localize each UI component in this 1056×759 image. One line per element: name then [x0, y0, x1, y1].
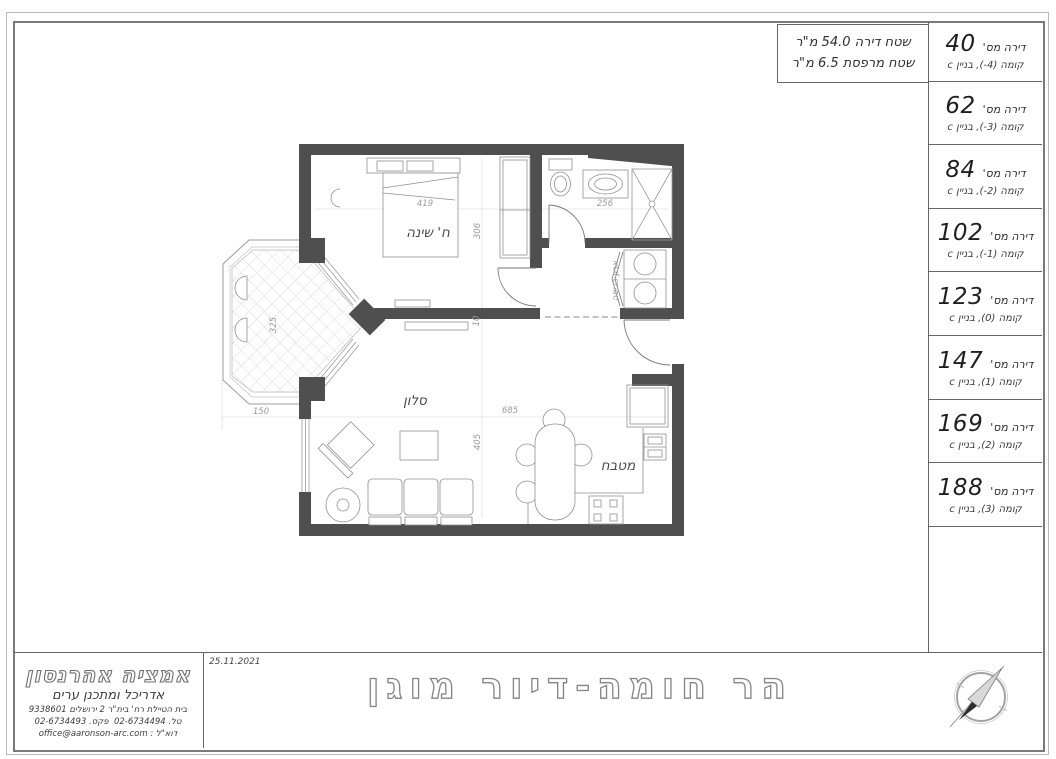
floor-info: קומה (2), בניין c	[949, 440, 1022, 451]
walls	[299, 144, 684, 536]
armchair	[318, 419, 377, 478]
dining-table	[516, 409, 592, 520]
floor-info: קומה (3), בניין c	[949, 504, 1022, 515]
dim-bedroom-width: 419	[417, 199, 433, 209]
apartment-row: דירה מס'62 קומה (-3), בניין c	[929, 82, 1042, 145]
entry-door	[624, 320, 670, 365]
living-shelf	[405, 322, 468, 330]
floor-info: קומה (-4), בניין c	[947, 60, 1023, 71]
wardrobe	[500, 157, 530, 258]
apartment-row: דירה מס'84 קומה (-2), בניין c	[929, 145, 1042, 209]
unit-number: 147	[938, 348, 983, 374]
dim-balcony-width: 150	[253, 407, 269, 417]
dim-balcony-depth: 325	[269, 317, 279, 333]
architect-address: בית הטיילת רח' בית"ר 2 ירושלים 9338601	[29, 705, 187, 715]
coffee-table	[400, 431, 438, 460]
shower-icon	[632, 169, 672, 240]
empty-cell	[929, 527, 1042, 651]
dim-wall: 10	[472, 316, 482, 327]
toilet-icon	[549, 159, 572, 196]
area-summary-box: שטח דירה 54.0 מ"ר שטח מרפסת 6.5 מ"ר	[777, 24, 929, 83]
apartment-row: דירה מס'147 קומה (1), בניין c	[929, 336, 1042, 400]
living-window	[299, 419, 311, 492]
apartment-row: דירה מס'102 קומה (-1), בניין c	[929, 209, 1042, 272]
floor-info: קומה (1), בניין c	[949, 377, 1022, 388]
dim-living-depth: 405	[473, 434, 483, 450]
bedside-lamp	[331, 189, 340, 207]
unit-number: 188	[938, 475, 983, 501]
north-arrow-icon	[948, 663, 1016, 731]
bedroom-label: ח' שינה	[406, 225, 450, 241]
balcony-area-text: שטח מרפסת 6.5 מ"ר	[792, 54, 915, 74]
dim-bath-width: 256	[597, 199, 614, 209]
unit-label: דירה מס'	[983, 41, 1026, 54]
architect-stamp: אמציה אהרנסון אדריכל ומתכנן ערים בית הטי…	[13, 653, 204, 748]
floor-plan: ח' שינה סלון מטבח ארון כביסה 419 306 256…	[215, 133, 695, 555]
apartment-table: דירה מס'40 קומה (-4), בניין c דירה מס'62…	[928, 21, 1042, 652]
sofa	[368, 479, 473, 525]
floor-info: קומה (0), בניין c	[949, 313, 1022, 324]
unit-number: 62	[945, 93, 975, 119]
dim-living-width: 685	[502, 406, 518, 416]
laundry-label: ארון כביסה	[611, 261, 621, 302]
apartment-row: דירה מס'169 קומה (2), בניין c	[929, 400, 1042, 463]
architect-name: אמציה אהרנסון	[25, 663, 191, 687]
unit-number: 84	[945, 157, 975, 183]
kitchen-sink-icon	[644, 434, 666, 460]
unit-number: 40	[945, 31, 975, 57]
architect-email: דוא"ל : office@aaronson-arc.com	[39, 729, 178, 739]
project-title: הר חומה-דיור מוגן	[220, 666, 940, 707]
fridge-icon	[627, 385, 668, 427]
architect-profession: אדריכל ומתכנן ערים	[52, 688, 164, 703]
bathroom-door	[549, 205, 585, 243]
apartment-row: דירה מס'188 קומה (3), בניין c	[929, 463, 1042, 527]
living-label: סלון	[403, 393, 428, 409]
balcony	[223, 240, 366, 404]
floor-info: קומה (-3), בניין c	[947, 122, 1023, 133]
architect-phone: טל. 02-6734494 פקס. 02-6734493	[35, 717, 182, 727]
floor-info: קומה (-2), בניין c	[947, 186, 1023, 197]
stove-icon	[589, 496, 623, 524]
bedroom-door	[498, 268, 536, 306]
dim-bedroom-depth: 306	[473, 222, 483, 239]
floor-info: קומה (-1), בניין c	[947, 249, 1023, 260]
sink-icon	[583, 170, 628, 198]
bedroom-shelf	[395, 300, 430, 307]
apartment-row: דירה מס'40 קומה (-4), בניין c	[929, 21, 1042, 82]
apartment-area-text: שטח דירה 54.0 מ"ר	[795, 33, 910, 53]
bed	[367, 158, 460, 257]
apartment-row: דירה מס'123 קומה (0), בניין c	[929, 272, 1042, 336]
drawing-sheet: שטח דירה 54.0 מ"ר שטח מרפסת 6.5 מ"ר דירה…	[0, 0, 1056, 759]
unit-number: 169	[938, 411, 983, 437]
unit-number: 102	[938, 220, 983, 246]
side-table	[326, 488, 360, 522]
unit-number: 123	[938, 284, 983, 310]
kitchen-label: מטבח	[601, 458, 636, 474]
